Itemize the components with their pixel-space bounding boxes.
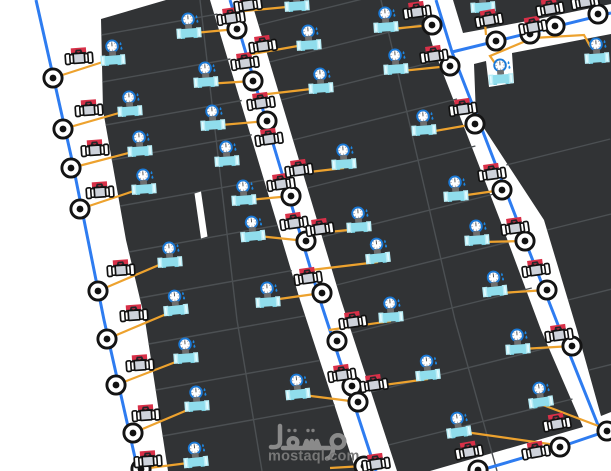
svg-text:mostaql.com: mostaql.com	[268, 449, 360, 465]
